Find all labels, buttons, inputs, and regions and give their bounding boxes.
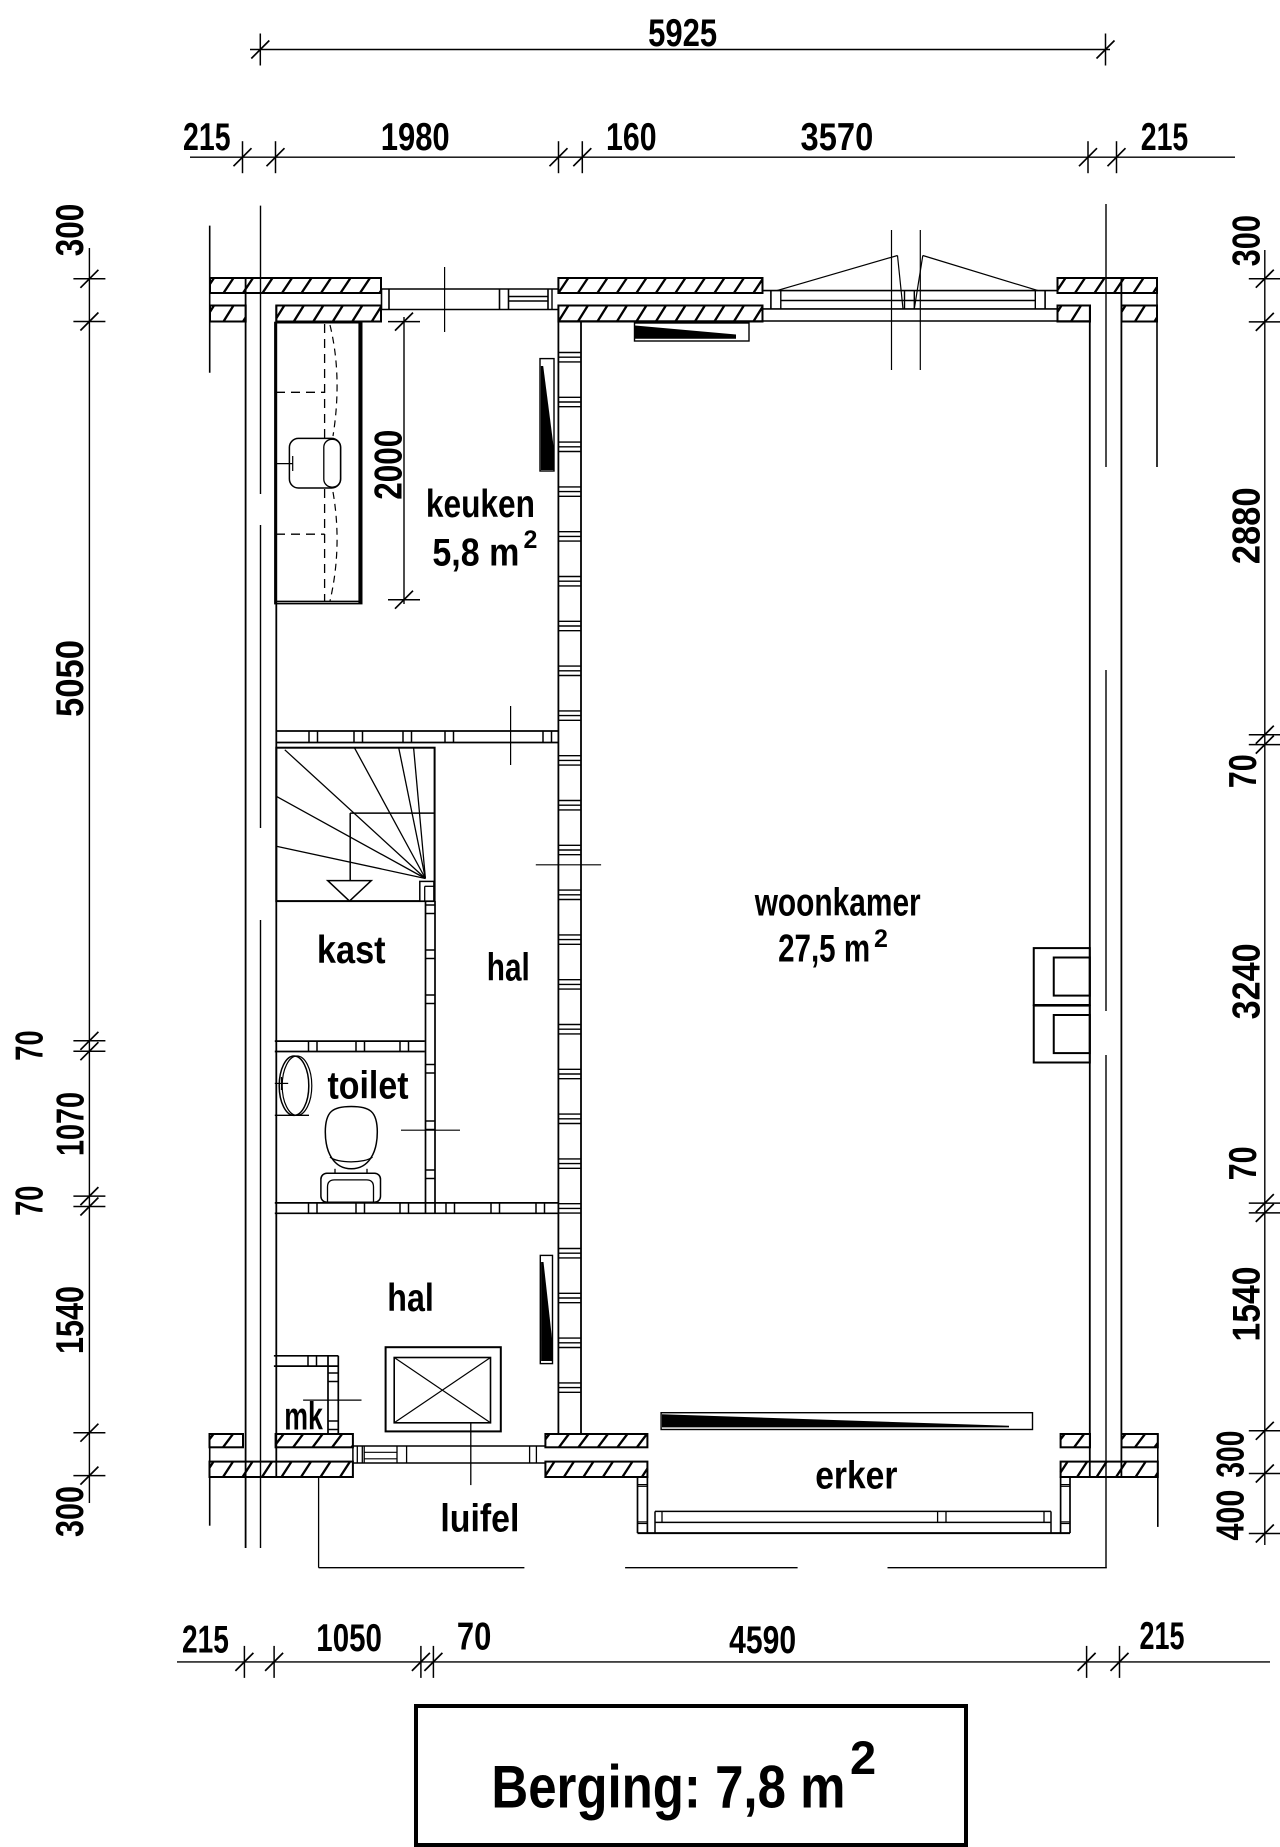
svg-text:400: 400 (1210, 1490, 1253, 1541)
svg-text:215: 215 (182, 1619, 229, 1662)
svg-text:luifel: luifel (440, 1498, 519, 1541)
svg-text:2880: 2880 (1226, 487, 1269, 564)
svg-text:5050: 5050 (49, 640, 92, 717)
svg-text:300: 300 (1210, 1431, 1253, 1478)
svg-text:70: 70 (1222, 754, 1265, 788)
svg-text:160: 160 (606, 116, 657, 159)
svg-text:300: 300 (1226, 215, 1269, 266)
svg-text:5925: 5925 (648, 12, 717, 55)
svg-text:1050: 1050 (316, 1617, 382, 1660)
svg-text:toilet: toilet (328, 1064, 409, 1107)
svg-text:4590: 4590 (729, 1619, 796, 1662)
svg-text:300: 300 (49, 204, 92, 257)
svg-text:2000: 2000 (368, 430, 411, 500)
svg-text:2: 2 (524, 526, 538, 554)
svg-text:215: 215 (1141, 116, 1189, 159)
svg-text:1540: 1540 (49, 1286, 92, 1354)
svg-text:215: 215 (1140, 1615, 1185, 1658)
svg-text:70: 70 (9, 1186, 52, 1216)
svg-text:70: 70 (9, 1030, 52, 1060)
svg-text:erker: erker (815, 1455, 897, 1498)
svg-text:keuken: keuken (426, 483, 535, 526)
svg-text:2: 2 (850, 1731, 876, 1784)
svg-text:215: 215 (183, 116, 231, 159)
svg-text:Berging: 7,8 m: Berging: 7,8 m (491, 1753, 845, 1820)
svg-text:1070: 1070 (49, 1092, 92, 1156)
svg-text:hal: hal (487, 947, 530, 990)
svg-text:3240: 3240 (1226, 943, 1269, 1019)
svg-text:1980: 1980 (381, 116, 450, 159)
svg-text:kast: kast (317, 929, 386, 972)
svg-text:1540: 1540 (1226, 1267, 1269, 1342)
svg-text:70: 70 (457, 1616, 491, 1659)
svg-text:27,5 m: 27,5 m (778, 927, 870, 970)
svg-text:woonkamer: woonkamer (754, 881, 921, 924)
svg-text:2: 2 (874, 925, 888, 953)
svg-text:5,8 m: 5,8 m (432, 532, 519, 575)
svg-text:70: 70 (1222, 1146, 1265, 1180)
svg-text:mk: mk (284, 1396, 323, 1439)
svg-text:hal: hal (387, 1277, 434, 1320)
svg-text:300: 300 (49, 1486, 92, 1537)
svg-text:3570: 3570 (801, 116, 874, 159)
